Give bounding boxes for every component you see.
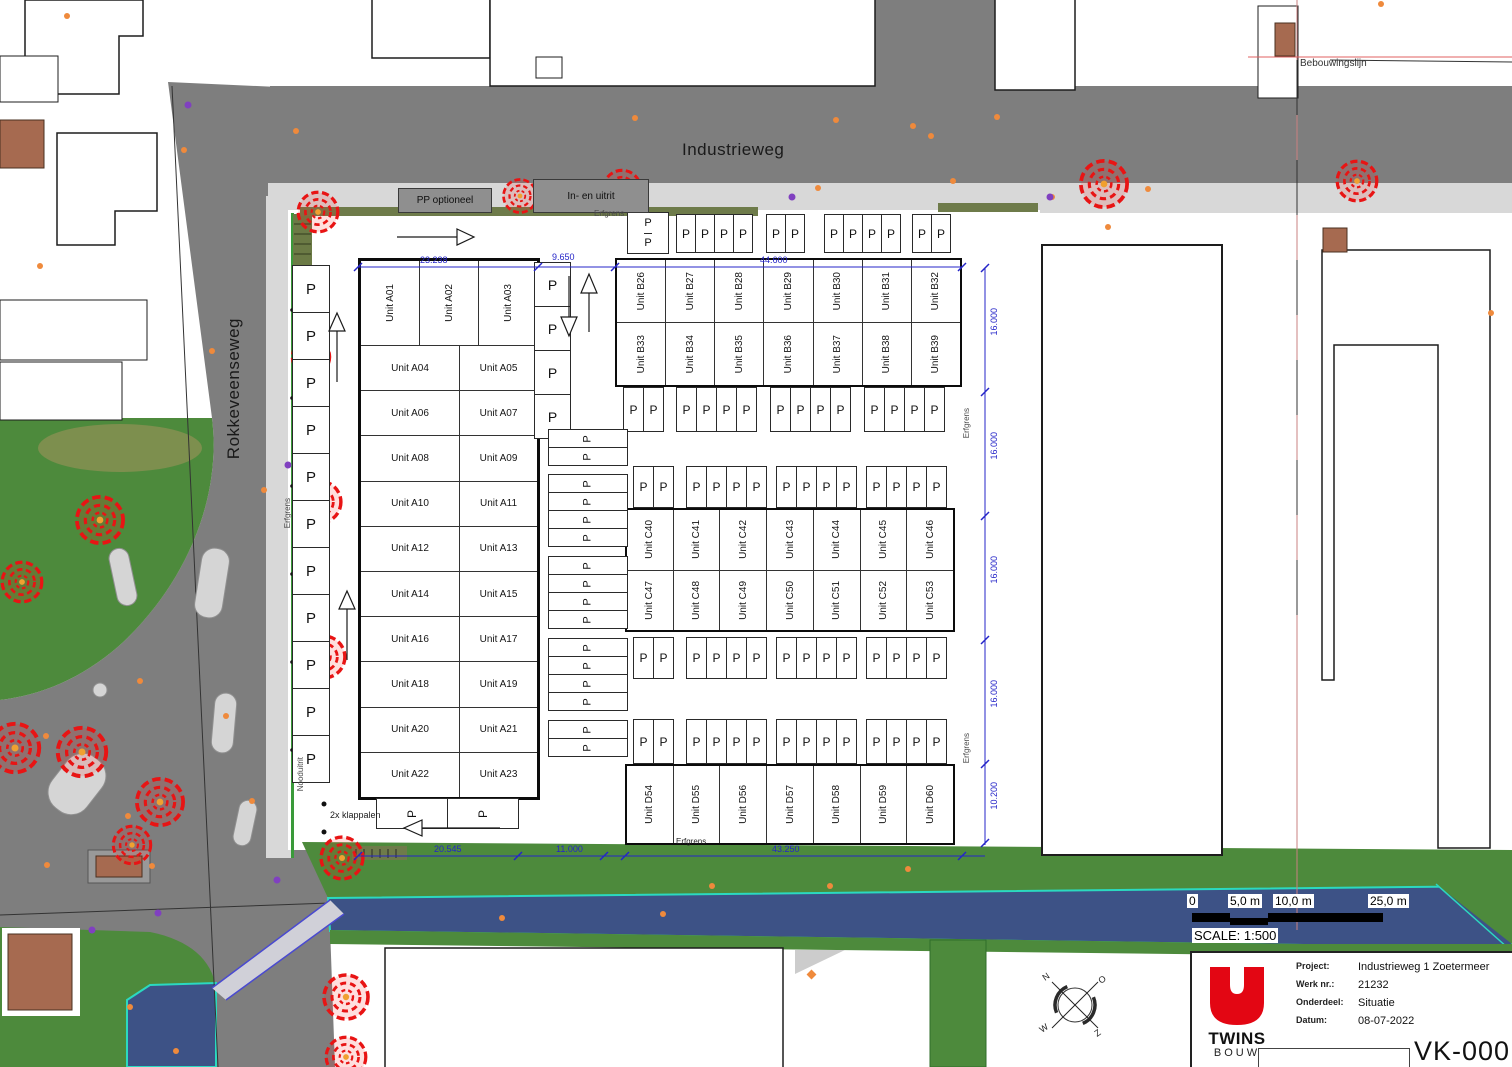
parking-stall: P — [924, 387, 945, 432]
parking-stall: P — [886, 466, 907, 508]
parking-letter: P — [582, 562, 594, 569]
parking-stall: P — [714, 214, 734, 253]
unit-label: Unit A04 — [391, 363, 429, 374]
unit-label: Unit A07 — [480, 408, 518, 419]
parking-stall: P — [292, 688, 330, 736]
parking-letter: P — [306, 375, 316, 392]
parking-stall: P — [866, 719, 887, 764]
dim-b-width: 44.600 — [760, 255, 788, 265]
parking-stall: P — [766, 214, 786, 253]
parking-stall: P — [716, 387, 737, 432]
parking-stall: P — [548, 692, 628, 711]
parking-stall: P — [706, 719, 727, 764]
unit-cell: Unit C43 — [767, 510, 814, 570]
parking-letter: P — [712, 651, 720, 665]
unit-label: Unit D57 — [785, 785, 796, 824]
parking-letter: P — [644, 237, 651, 249]
parking-stall: P — [696, 387, 717, 432]
unit-cell: Unit C49 — [720, 571, 767, 631]
parking-stall: P — [746, 466, 767, 508]
unit-label: Unit B26 — [636, 272, 647, 310]
field-label: Werk nr.: — [1296, 979, 1358, 995]
parking-stall: P — [776, 719, 797, 764]
unit-label: Unit B35 — [734, 335, 745, 373]
unit-cell: Unit D58 — [814, 766, 861, 843]
parking-stall: P — [926, 637, 947, 679]
parking-letter: P — [870, 403, 878, 417]
scale-tick-25: 25,0 m — [1368, 894, 1409, 908]
scale-bar-segment — [1268, 913, 1383, 922]
title-field-werknr: Werk nr.: 21232 — [1296, 979, 1389, 995]
unit-label: Unit D58 — [831, 785, 842, 824]
parking-stall: P — [623, 387, 644, 432]
unit-label: Unit A13 — [480, 543, 518, 554]
parking-letter: P — [548, 321, 557, 337]
title-field-onderdeel: Onderdeel: Situatie — [1296, 997, 1395, 1013]
unit-label: Unit C49 — [738, 581, 749, 620]
parking-stall: P — [633, 637, 654, 679]
erfgrens-label-left: Erfgrens — [283, 498, 292, 528]
unit-cell: Unit A16 — [361, 617, 460, 661]
parking-stall: P — [836, 719, 857, 764]
parking-stall: P — [906, 719, 927, 764]
parking-letter: P — [712, 480, 720, 494]
parking-stall: P — [292, 500, 330, 548]
unit-cell: Unit A22 — [361, 753, 460, 797]
parking-letter: P — [802, 735, 810, 749]
pond — [127, 983, 216, 1067]
unit-label: Unit B31 — [881, 272, 892, 310]
parking-letter: P — [722, 403, 730, 417]
unit-label: Unit A22 — [391, 769, 429, 780]
parking-letter: P — [682, 403, 690, 417]
parking-letter: P — [892, 735, 900, 749]
unit-cell: Unit B32 — [912, 260, 960, 322]
parking-stall: P — [816, 719, 837, 764]
parking-stall: P — [733, 214, 753, 253]
parking-stall: P — [292, 406, 330, 454]
dim-a-width: 23.238 — [420, 255, 448, 265]
parking-stall: P — [816, 466, 837, 508]
unit-cell: Unit A15 — [460, 572, 537, 616]
parking-stall: P — [534, 350, 571, 395]
unit-label: Unit A05 — [480, 363, 518, 374]
unit-label: Unit C42 — [738, 520, 749, 559]
parking-stall: P — [633, 466, 654, 508]
parking-letter: P — [887, 227, 895, 241]
unit-cell: Unit D55 — [674, 766, 721, 843]
pp-optioneel-box: PP optioneel — [398, 188, 492, 213]
unit-label: Unit B39 — [930, 335, 941, 373]
unit-label: Unit D60 — [925, 785, 936, 824]
building-block-d: Unit D54Unit D55Unit D56Unit D57Unit D58… — [625, 764, 955, 845]
parking-stall: P — [776, 637, 797, 679]
unit-cell: Unit A20 — [361, 708, 460, 752]
unit-cell: Unit A07 — [460, 391, 537, 435]
parking-letter: P — [582, 435, 594, 442]
unit-cell: Unit B36 — [764, 323, 813, 385]
parking-letter: P — [306, 328, 316, 345]
parking-stall: P — [548, 592, 628, 611]
drawing-number: VK-000 — [1414, 1036, 1510, 1067]
parking-letter: P — [842, 651, 850, 665]
unit-cell: Unit B37 — [814, 323, 863, 385]
traffic-islands — [40, 546, 259, 847]
unit-label: Unit C44 — [831, 520, 842, 559]
parking-letter: P — [772, 227, 780, 241]
parking-stall: P — [534, 306, 571, 351]
building-block-c: Unit C40Unit C41Unit C42Unit C43Unit C44… — [625, 508, 955, 632]
parking-stall: P — [796, 719, 817, 764]
unit-cell: Unit B33 — [617, 323, 666, 385]
dim-bottom-3: 43.250 — [772, 844, 800, 854]
unit-cell: Unit A18 — [361, 662, 460, 706]
parking-letter: P — [306, 751, 316, 768]
parking-letter: P — [892, 480, 900, 494]
parking-letter: P — [932, 480, 940, 494]
parking-letter: P — [732, 651, 740, 665]
unit-cell: Unit C40 — [627, 510, 674, 570]
unit-label: Unit B38 — [881, 335, 892, 373]
unit-cell: Unit A06 — [361, 391, 460, 435]
parking-stall: P — [686, 719, 707, 764]
parking-stall: P — [770, 387, 791, 432]
parking-letter: P — [872, 480, 880, 494]
unit-cell: Unit C42 — [720, 510, 767, 570]
parking-letter: P — [548, 409, 557, 425]
parking-stall: P — [676, 387, 697, 432]
unit-label: Unit D59 — [878, 785, 889, 824]
parking-stall: P — [292, 547, 330, 595]
parking-stall: P — [746, 719, 767, 764]
unit-label: Unit A20 — [391, 724, 429, 735]
parking-stall: P — [548, 429, 628, 448]
bridge — [212, 900, 344, 1000]
parking-letter: P — [742, 403, 750, 417]
parking-stall: P — [447, 798, 519, 829]
parking-letter: P — [872, 651, 880, 665]
parking-letter: P — [582, 726, 594, 733]
unit-cell: Unit A13 — [460, 527, 537, 571]
unit-label: Unit A17 — [480, 634, 518, 645]
unit-label: Unit B29 — [783, 272, 794, 310]
unit-label: Unit C51 — [831, 581, 842, 620]
parking-letter: P — [752, 480, 760, 494]
parking-stall: P — [726, 719, 747, 764]
parking-stall: P — [643, 387, 664, 432]
parking-letter: P — [732, 480, 740, 494]
dim-bottom-2: 11.000 — [556, 844, 583, 854]
road-label-industrieweg: Industrieweg — [682, 140, 784, 160]
parking-stall: P — [292, 594, 330, 642]
title-field-project: Project: Industrieweg 1 Zoetermeer — [1296, 961, 1489, 977]
parking-stall: P — [796, 466, 817, 508]
unit-cell: Unit C47 — [627, 571, 674, 631]
unit-label: Unit A16 — [391, 634, 429, 645]
unit-label: Unit A10 — [391, 498, 429, 509]
unit-label: Unit A15 — [480, 589, 518, 600]
parking-letter: P — [306, 469, 316, 486]
parking-stall: P — [548, 474, 628, 493]
unit-cell: Unit B39 — [912, 323, 960, 385]
parking-letter: P — [644, 217, 651, 229]
parking-letter: P — [682, 227, 690, 241]
parking-stall: P — [292, 641, 330, 689]
unit-label: Unit C50 — [785, 581, 796, 620]
parking-stall: P — [706, 466, 727, 508]
parking-stall: P — [746, 637, 767, 679]
parking-stall: P — [548, 738, 628, 757]
parking-stall: P — [548, 638, 628, 657]
unit-cell: Unit A23 — [460, 753, 537, 797]
parking-letter: P — [582, 480, 594, 487]
parking-stall: P — [548, 674, 628, 693]
unit-label: Unit A09 — [480, 453, 518, 464]
parking-letter: P — [932, 735, 940, 749]
parking-stall: P — [653, 719, 674, 764]
parking-letter: P — [692, 480, 700, 494]
unit-label: Unit B34 — [685, 335, 696, 373]
parking-stall: P — [534, 262, 571, 307]
parking-letter: P — [836, 403, 844, 417]
parking-letter: P — [649, 403, 657, 417]
parking-stall: P — [866, 637, 887, 679]
twins-logo-icon — [1206, 967, 1268, 1027]
parking-letter: P — [890, 403, 898, 417]
compass-e: O — [1096, 973, 1107, 985]
parking-stall: P — [376, 798, 448, 829]
parking-letter: P — [782, 480, 790, 494]
parking-stall: P — [548, 492, 628, 511]
unit-cell: Unit A08 — [361, 436, 460, 480]
unit-cell: Unit B26 — [617, 260, 666, 322]
unit-cell: Unit A12 — [361, 527, 460, 571]
unit-cell: Unit B38 — [863, 323, 912, 385]
parking-letter: P — [582, 616, 594, 623]
compass-w: W — [1037, 1021, 1050, 1034]
parking-letter: P — [306, 516, 316, 533]
field-value: Industrieweg 1 Zoetermeer — [1358, 961, 1489, 977]
unit-label: Unit C53 — [925, 581, 936, 620]
parking-stall: P — [785, 214, 805, 253]
unit-label: Unit B32 — [930, 272, 941, 310]
parking-stall: P — [866, 466, 887, 508]
unit-cell: Unit C51 — [814, 571, 861, 631]
parking-stall: P — [884, 387, 905, 432]
dim-right-4: 16.000 — [989, 680, 999, 708]
parking-letter: P — [910, 403, 918, 417]
dim-right-3: 16.000 — [989, 556, 999, 584]
parking-letter: P — [822, 735, 830, 749]
parking-letter: P — [548, 277, 557, 293]
unit-label: Unit C46 — [925, 520, 936, 559]
scale-bar-segment — [1230, 918, 1268, 925]
parking-stall: P — [881, 214, 901, 253]
unit-cell: Unit B28 — [715, 260, 764, 322]
unit-cell: Unit C53 — [907, 571, 953, 631]
klappalen-label: 2x klappalen — [330, 810, 381, 820]
parking-stall: P — [548, 610, 628, 629]
parking-stall: P — [695, 214, 715, 253]
parking-letter: P — [306, 563, 316, 580]
parking-stall: P — [836, 466, 857, 508]
parking-letter: P — [802, 651, 810, 665]
parking-stall: P — [790, 387, 811, 432]
parking-letter: P — [796, 403, 804, 417]
parking-stall-stacked: PP — [627, 212, 669, 254]
parking-stall: P — [653, 637, 674, 679]
parking-stall: P — [726, 637, 747, 679]
parking-stall: P — [906, 466, 927, 508]
parking-letter: P — [872, 735, 880, 749]
unit-cell: Unit A21 — [460, 708, 537, 752]
parking-stall: P — [706, 637, 727, 679]
road-label-rokkeveenseweg: Rokkeveenseweg — [224, 318, 244, 459]
dim-gap: 9.650 — [552, 252, 575, 262]
building-block-a: Unit A01Unit A02Unit A03Unit A04Unit A05… — [358, 258, 540, 800]
parking-letter: P — [582, 453, 594, 460]
parking-letter: P — [306, 610, 316, 627]
parking-letter: P — [405, 809, 419, 817]
parking-letter: P — [892, 651, 900, 665]
parking-stall: P — [653, 466, 674, 508]
unit-cell: Unit C46 — [907, 510, 953, 570]
parking-letter: P — [582, 516, 594, 523]
parking-stall: P — [548, 720, 628, 739]
unit-label: Unit A06 — [391, 408, 429, 419]
dim-bottom-1: 20.545 — [434, 844, 462, 854]
parking-letter: P — [752, 651, 760, 665]
parking-letter: P — [306, 657, 316, 674]
parking-stall: P — [292, 359, 330, 407]
parking-stall: P — [816, 637, 837, 679]
field-label: Project: — [1296, 961, 1358, 977]
unit-cell: Unit B29 — [764, 260, 813, 322]
dim-right-5: 10.200 — [989, 782, 999, 810]
parking-stall: P — [633, 719, 654, 764]
parking-letter: P — [739, 227, 747, 241]
parking-letter: P — [639, 480, 647, 494]
scale-tick-10: 10,0 m — [1273, 894, 1314, 908]
parking-stall: P — [548, 574, 628, 593]
parking-stall: P — [548, 447, 628, 466]
unit-label: Unit B36 — [783, 335, 794, 373]
parking-letter: P — [842, 480, 850, 494]
parking-letter: P — [930, 403, 938, 417]
parking-letter: P — [639, 735, 647, 749]
parking-letter: P — [701, 227, 709, 241]
compass-n: N — [1040, 971, 1051, 983]
parking-letter: P — [306, 422, 316, 439]
parking-letter: P — [582, 598, 594, 605]
dim-right-2: 16.000 — [989, 432, 999, 460]
parking-letter: P — [868, 227, 876, 241]
unit-label: Unit C41 — [691, 520, 702, 559]
unit-label: Unit D56 — [738, 785, 749, 824]
parking-letter: P — [912, 735, 920, 749]
unit-cell: Unit A01 — [361, 261, 420, 345]
erfgrens-label-bottom: Erfgrens — [676, 837, 706, 846]
unit-cell: Unit C41 — [674, 510, 721, 570]
unit-label: Unit B27 — [685, 272, 696, 310]
scale-bar-segment — [1192, 913, 1230, 922]
parking-letter: P — [582, 580, 594, 587]
parking-stall: P — [862, 214, 882, 253]
parking-stall: P — [292, 265, 330, 313]
parking-stall: P — [843, 214, 863, 253]
parking-letter: P — [692, 735, 700, 749]
parking-stall: P — [926, 466, 947, 508]
scale-ratio-label: SCALE: 1:500 — [1192, 928, 1278, 943]
parking-letter: P — [702, 403, 710, 417]
compass-s: Z — [1092, 1027, 1103, 1039]
parking-stall: P — [686, 466, 707, 508]
unit-label: Unit A14 — [391, 589, 429, 600]
parking-letter: P — [782, 651, 790, 665]
parking-letter: P — [692, 651, 700, 665]
parking-stall: P — [548, 510, 628, 529]
unit-cell: Unit C50 — [767, 571, 814, 631]
unit-cell: Unit C45 — [861, 510, 908, 570]
parking-letter: P — [849, 227, 857, 241]
parking-stall: P — [904, 387, 925, 432]
parking-letter: P — [639, 651, 647, 665]
unit-label: Unit C43 — [785, 520, 796, 559]
parking-stall: P — [931, 214, 951, 253]
unit-label: Unit B28 — [734, 272, 745, 310]
unit-cell: Unit D54 — [627, 766, 674, 843]
klappalen-bullets — [322, 802, 327, 835]
parking-letter: P — [548, 365, 557, 381]
parking-letter: P — [830, 227, 838, 241]
unit-label: Unit C40 — [644, 520, 655, 559]
parking-letter: P — [912, 480, 920, 494]
title-field-datum: Datum: 08-07-2022 — [1296, 1015, 1414, 1031]
parking-letter: P — [912, 651, 920, 665]
unit-cell: Unit C44 — [814, 510, 861, 570]
parking-letter: P — [822, 651, 830, 665]
unit-label: Unit A01 — [385, 284, 396, 322]
unit-cell: Unit A14 — [361, 572, 460, 616]
unit-label: Unit A02 — [444, 284, 455, 322]
unit-label: Unit A12 — [391, 543, 429, 554]
unit-cell: Unit B30 — [814, 260, 863, 322]
parking-stall: P — [886, 637, 907, 679]
field-label: Datum: — [1296, 1015, 1358, 1031]
unit-label: Unit C47 — [644, 581, 655, 620]
parking-letter: P — [937, 227, 945, 241]
nooduitrit-label: Nooduitrit — [296, 757, 305, 791]
unit-label: Unit B30 — [832, 272, 843, 310]
scale-tick-0: 0 — [1187, 894, 1198, 908]
scale-bar: 0 5,0 m 10,0 m 25,0 m SCALE: 1:500 — [1184, 890, 1429, 952]
parking-letter: P — [782, 735, 790, 749]
field-value: Situatie — [1358, 997, 1395, 1013]
parking-letter: P — [712, 735, 720, 749]
parking-stall: P — [824, 214, 844, 253]
parking-letter: P — [732, 735, 740, 749]
field-label: Onderdeel: — [1296, 997, 1358, 1013]
parking-letter: P — [582, 644, 594, 651]
unit-cell: Unit A19 — [460, 662, 537, 706]
parking-stall: P — [548, 528, 628, 547]
parking-stall: P — [548, 556, 628, 575]
bebouwingslijn-label: Bebouwingslijn — [1300, 58, 1367, 69]
unit-label: Unit A08 — [391, 453, 429, 464]
parking-stall: P — [810, 387, 831, 432]
unit-label: Unit D55 — [691, 785, 702, 824]
parking-letter: P — [659, 735, 667, 749]
